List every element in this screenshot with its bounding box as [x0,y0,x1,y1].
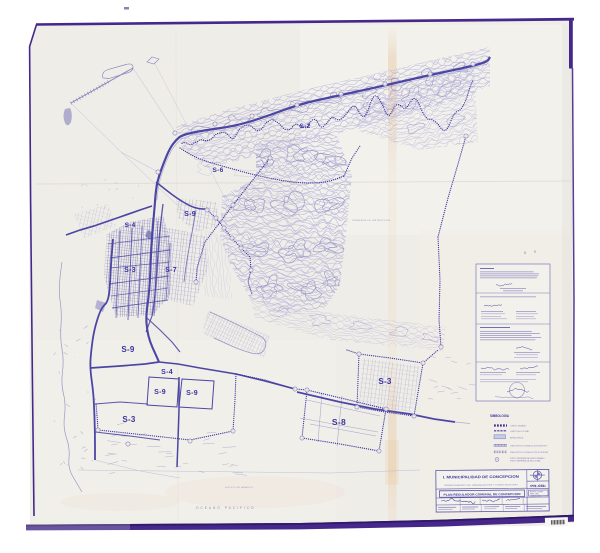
svg-text:AREA VERDE: AREA VERDE [510,436,524,439]
svg-text:S-4: S-4 [161,369,173,376]
svg-text:S-9: S-9 [184,211,196,218]
svg-text:S-3: S-3 [124,267,136,274]
svg-text:TERRENOS DE INSTRUCCION: TERRENOS DE INSTRUCCION [352,220,391,222]
svg-text:PUNTO REFERENCIA SECCIONAL: PUNTO REFERENCIA SECCIONAL [510,460,541,463]
svg-text:VIAS ESTRUCTURALES PROPUESTA: VIAS ESTRUCTURALES PROPUESTAS [510,451,549,454]
svg-text:SIMBOLOGIA: SIMBOLOGIA [490,413,509,418]
svg-text:S-2: S-2 [299,123,310,130]
svg-text:I. MUNICIPALIDAD DE CONCEPCI: I. MUNICIPALIDAD DE CONCEPCION [443,475,520,480]
svg-text:8: 8 [524,251,526,255]
svg-text:VIAS ESTRUCTURALES EXISTENTE: VIAS ESTRUCTURALES EXISTENTES [510,444,548,447]
svg-text:S-9: S-9 [121,345,135,354]
svg-text:S-7: S-7 [165,267,177,274]
svg-text:S-6: S-6 [212,167,223,174]
svg-text:S-8: S-8 [332,417,346,427]
svg-text:S-3: S-3 [122,415,136,424]
svg-text:PR-06b: PR-06b [530,484,546,488]
svg-text:PUNTO REFERENCIA LIMITE URB: PUNTO REFERENCIA LIMITE URBANO [510,457,545,460]
svg-text:9: 9 [534,250,536,254]
svg-text:S-4: S-4 [124,222,135,229]
svg-text:S-9: S-9 [154,389,166,396]
svg-text:LIMITE SECCIONAL: LIMITE SECCIONAL [510,430,530,433]
svg-text:S-3: S-3 [378,377,392,386]
svg-text:OCEANO PACIFICO: OCEANO PACIFICO [196,506,256,510]
svg-text:PLAN REGULADOR COMUNAL DE: PLAN REGULADOR COMUNAL DE CONCEPCION [444,492,521,497]
svg-text:GOLFO DE ARAUCO: GOLFO DE ARAUCO [225,486,254,489]
svg-text:S-9: S-9 [186,390,198,397]
svg-text:CERRO CHACABUCO: CERRO CHACABUCO [240,187,265,190]
svg-text:CAMINO A PENCO: CAMINO A PENCO [372,78,394,81]
svg-text:LIMITE URBANO: LIMITE URBANO [510,425,527,428]
